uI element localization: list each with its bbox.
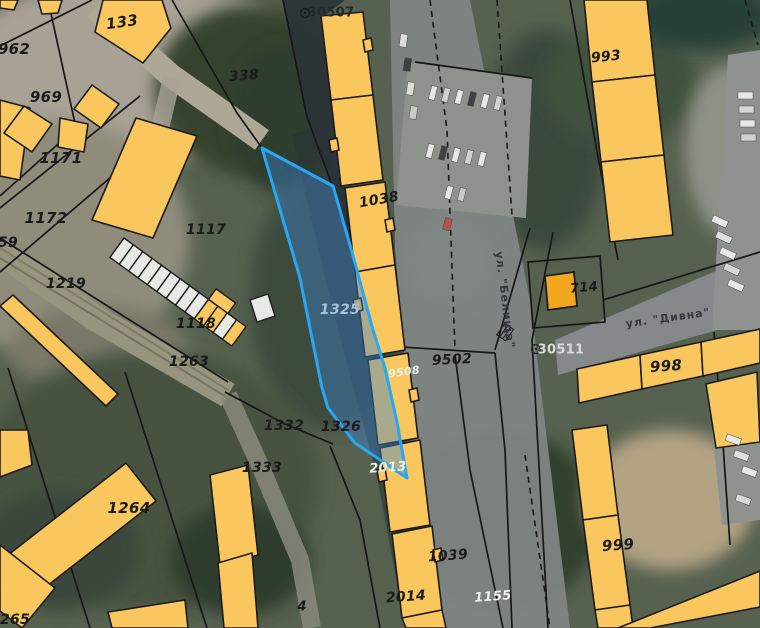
building-1333-b[interactable] <box>218 553 258 628</box>
building-1038-seg1[interactable] <box>321 12 373 100</box>
map-svg <box>0 0 760 628</box>
map-canvas[interactable]: 1331349629693383050711711172959121911171… <box>0 0 760 628</box>
building-714[interactable] <box>545 272 577 310</box>
building-993-seg1[interactable] <box>584 0 655 82</box>
